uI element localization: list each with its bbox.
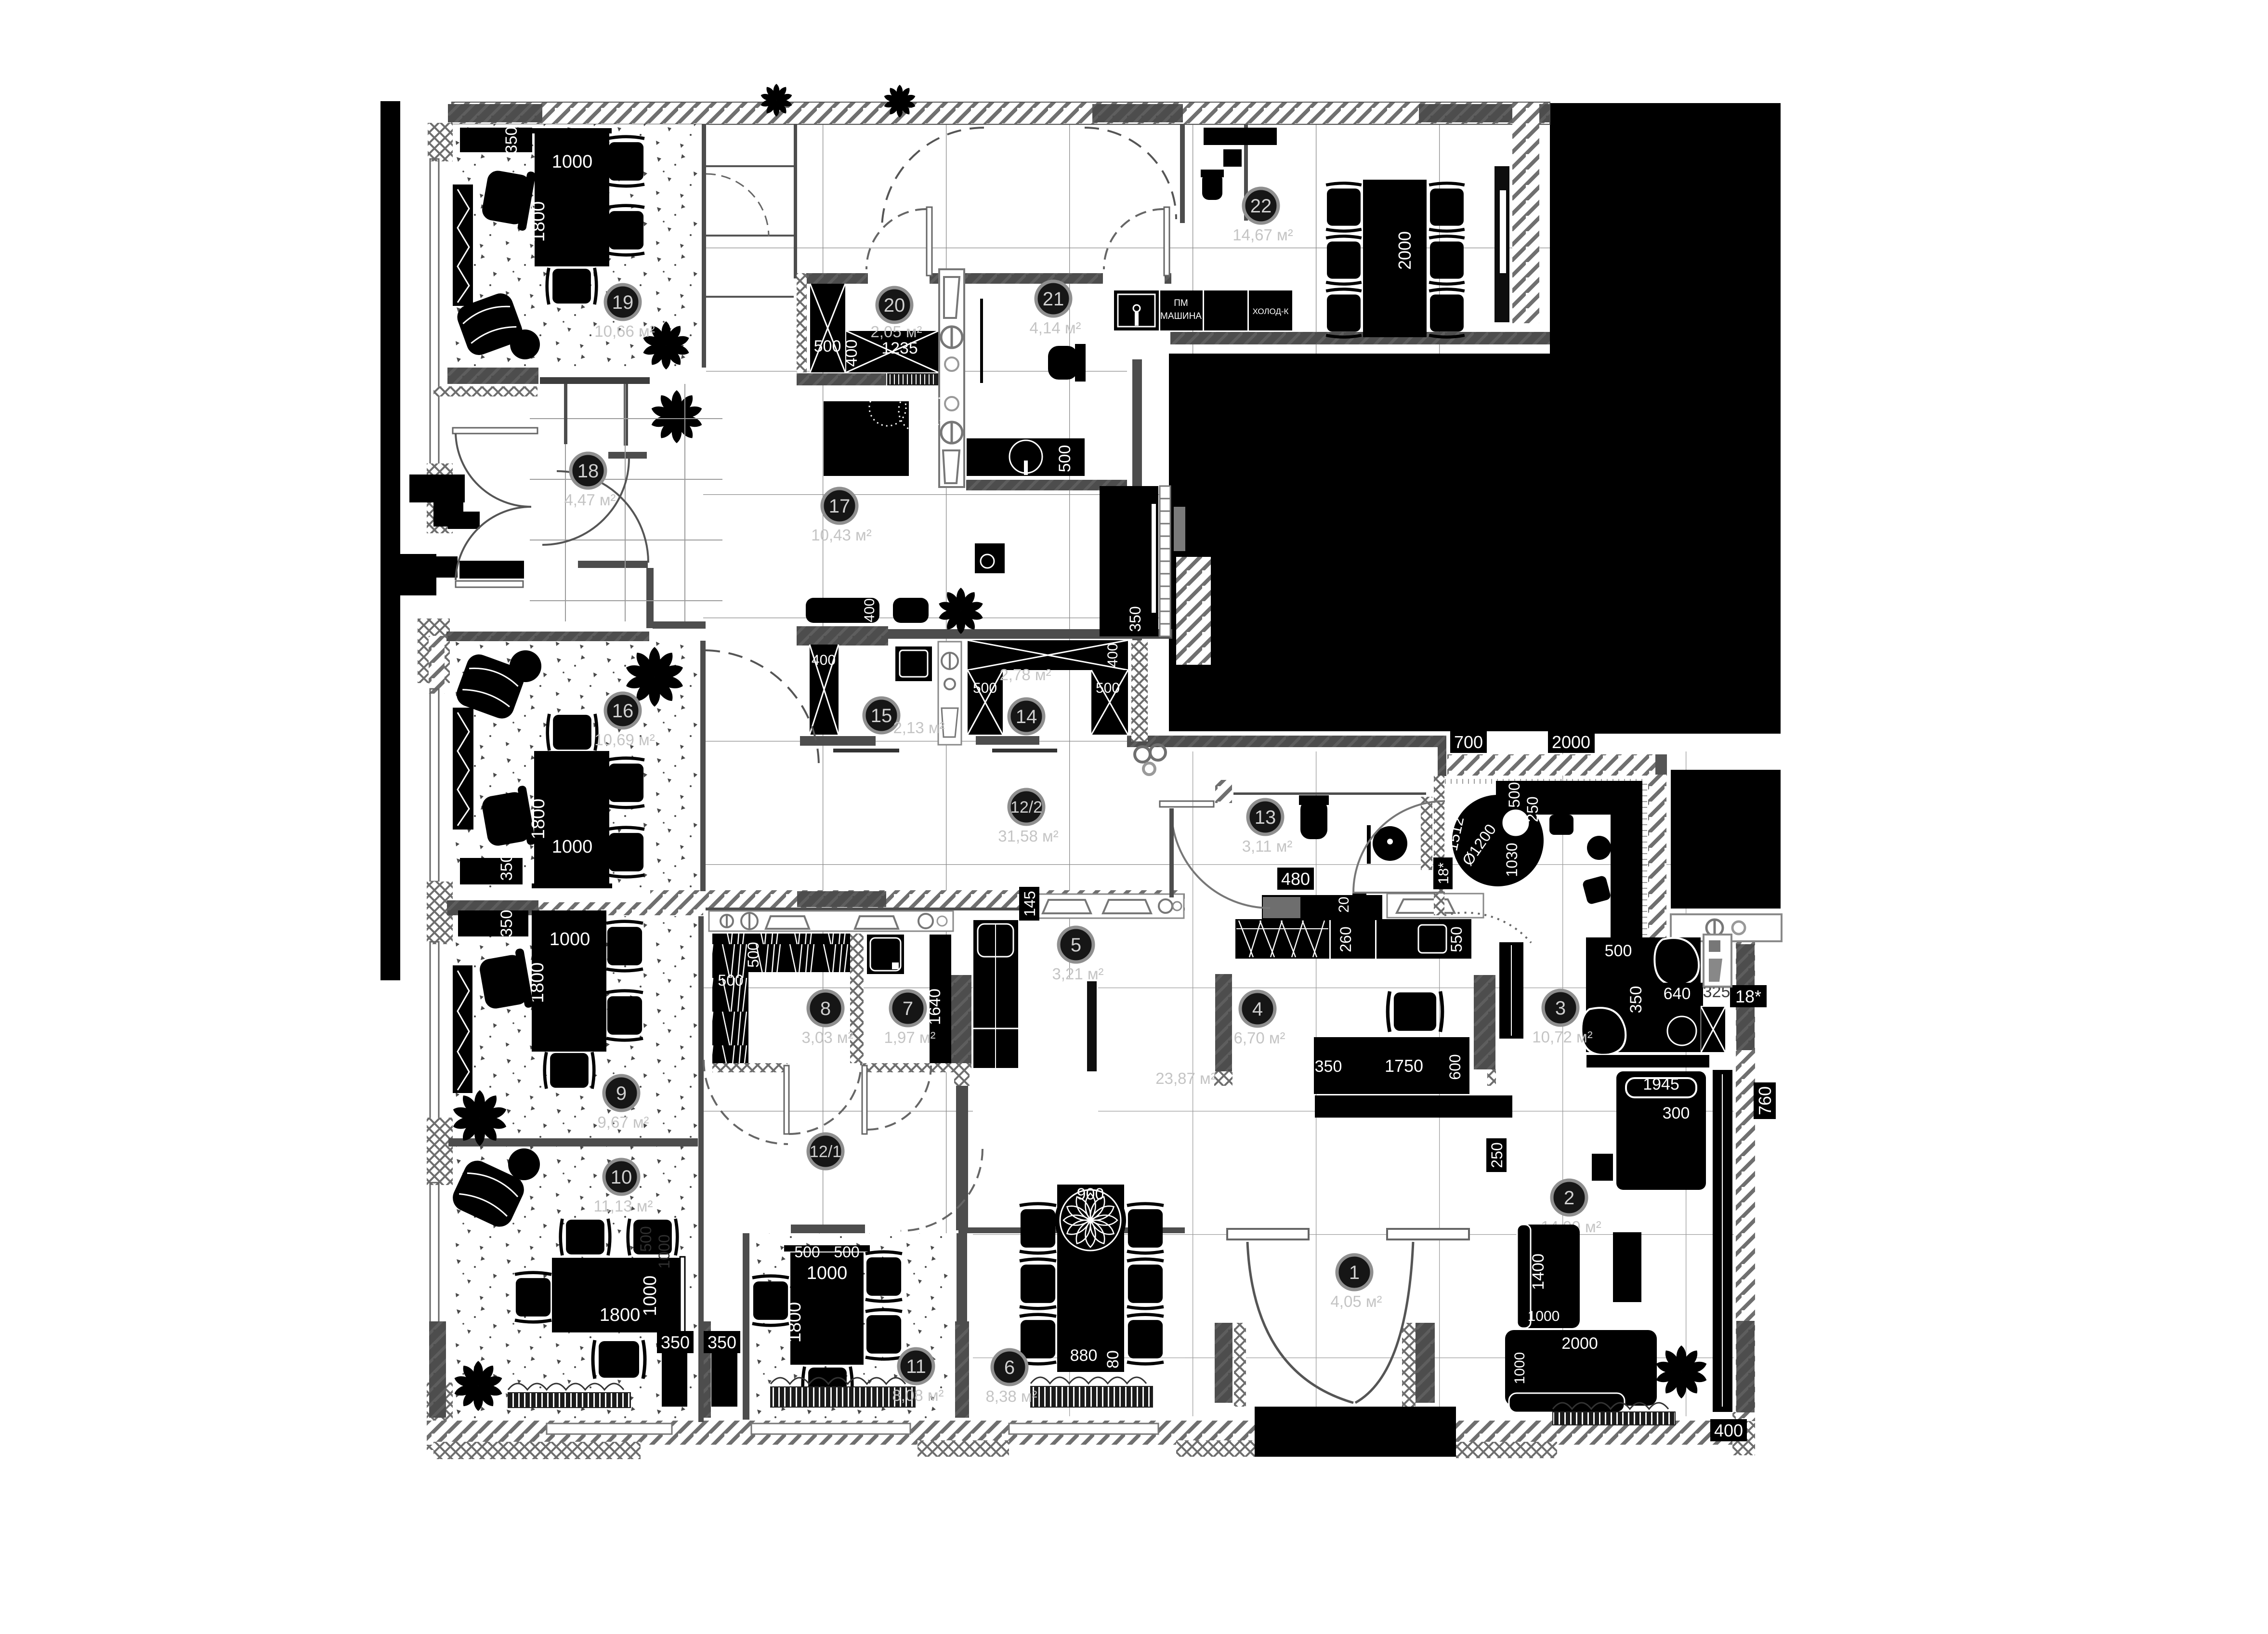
svg-text:2,78 м²: 2,78 м² [999,666,1051,684]
svg-text:500: 500 [834,1243,859,1261]
svg-text:20: 20 [884,295,905,316]
svg-text:18*: 18* [1735,987,1761,1006]
svg-text:350: 350 [1127,606,1144,632]
svg-text:ХОЛОД-К: ХОЛОД-К [1253,307,1289,316]
svg-text:350: 350 [502,127,521,154]
svg-text:17: 17 [829,496,851,517]
svg-text:12/2: 12/2 [1010,798,1042,817]
svg-text:80: 80 [1104,1350,1122,1369]
svg-text:250: 250 [1488,1142,1506,1168]
svg-text:1800: 1800 [528,799,549,840]
svg-text:10: 10 [611,1167,632,1188]
svg-text:18*: 18* [1436,862,1452,884]
svg-text:9: 9 [616,1083,627,1104]
svg-text:10,66 м²: 10,66 м² [594,322,655,340]
svg-text:2: 2 [1564,1187,1574,1209]
svg-text:145: 145 [1021,891,1038,916]
svg-text:400: 400 [1714,1421,1743,1440]
svg-text:1400: 1400 [1529,1253,1547,1290]
svg-text:1000: 1000 [550,929,590,949]
svg-text:400: 400 [862,598,878,622]
svg-text:11: 11 [906,1356,926,1377]
svg-text:3: 3 [1555,998,1566,1019]
svg-text:480: 480 [1281,869,1310,889]
svg-text:350: 350 [708,1332,736,1352]
svg-text:500: 500 [973,680,997,696]
svg-text:20: 20 [1336,896,1352,912]
svg-text:1000: 1000 [807,1263,848,1283]
svg-text:19: 19 [612,292,634,313]
svg-text:1000: 1000 [552,837,593,857]
svg-text:13: 13 [1255,807,1276,828]
svg-text:11,13 м²: 11,13 м² [594,1197,653,1215]
svg-text:1000: 1000 [655,1234,673,1268]
svg-text:10,72 м²: 10,72 м² [1532,1028,1592,1046]
svg-text:10,69 м²: 10,69 м² [594,731,655,749]
svg-text:500: 500 [718,972,743,989]
svg-text:1: 1 [1349,1262,1360,1283]
svg-text:ПМ: ПМ [1174,298,1188,308]
svg-text:6,70 м²: 6,70 м² [1233,1029,1285,1047]
svg-text:4,05 м²: 4,05 м² [1330,1292,1382,1310]
svg-text:500: 500 [1056,445,1074,473]
svg-text:2,13 м²: 2,13 м² [893,719,944,737]
svg-text:760: 760 [1755,1086,1775,1115]
svg-text:14,67 м²: 14,67 м² [1232,226,1293,244]
svg-text:1000: 1000 [1528,1308,1560,1324]
svg-text:500: 500 [745,942,762,967]
svg-text:600: 600 [1446,1054,1464,1080]
svg-text:2,05 м²: 2,05 м² [870,323,922,341]
svg-text:350: 350 [498,910,516,937]
svg-text:350: 350 [498,854,516,881]
svg-text:500: 500 [794,1243,820,1261]
svg-text:1000: 1000 [552,152,593,172]
svg-text:400: 400 [842,340,861,367]
svg-text:23,87 м²: 23,87 м² [1155,1069,1216,1087]
svg-text:4: 4 [1252,999,1263,1020]
svg-text:900: 900 [1077,1185,1104,1203]
svg-text:350: 350 [661,1332,690,1352]
svg-text:250: 250 [1524,796,1541,822]
svg-text:9,67 м²: 9,67 м² [597,1113,649,1131]
svg-text:1750: 1750 [1385,1056,1423,1076]
svg-text:МАШИНА: МАШИНА [1160,311,1202,321]
svg-text:31,58 м²: 31,58 м² [998,827,1058,845]
svg-text:500: 500 [814,337,841,356]
svg-text:2000: 2000 [1561,1334,1598,1353]
svg-text:500: 500 [1605,942,1632,960]
svg-text:500: 500 [1506,782,1523,807]
svg-text:22: 22 [1250,196,1272,217]
svg-text:14: 14 [1016,706,1037,727]
svg-text:1945: 1945 [1643,1075,1679,1094]
svg-text:3,11 м²: 3,11 м² [1242,837,1293,855]
svg-text:2000: 2000 [1395,231,1415,270]
svg-text:500: 500 [637,1226,655,1252]
svg-text:1800: 1800 [528,201,549,242]
svg-text:1235: 1235 [881,339,918,357]
svg-text:6: 6 [1004,1357,1015,1378]
svg-text:500: 500 [1096,680,1120,696]
svg-text:4,14 м²: 4,14 м² [1029,319,1081,337]
svg-text:8,08 м²: 8,08 м² [892,1386,944,1404]
svg-text:550: 550 [1448,926,1465,952]
svg-text:8,38 м²: 8,38 м² [985,1387,1037,1405]
svg-text:12/1: 12/1 [810,1143,841,1161]
svg-text:3,21 м²: 3,21 м² [1052,965,1103,983]
svg-text:2000: 2000 [1552,732,1590,752]
svg-text:21: 21 [1043,289,1064,310]
svg-text:4,47 м²: 4,47 м² [564,491,616,509]
svg-text:1000: 1000 [640,1276,660,1317]
svg-text:300: 300 [1663,1104,1690,1122]
svg-text:640: 640 [1664,985,1691,1003]
svg-text:260: 260 [1337,926,1354,952]
svg-text:16: 16 [612,700,634,722]
svg-text:1000: 1000 [1512,1352,1528,1384]
svg-text:10,43 м²: 10,43 м² [811,526,871,544]
svg-text:1,97 м²: 1,97 м² [884,1028,935,1046]
svg-text:15: 15 [871,705,892,726]
svg-text:8: 8 [820,998,831,1019]
svg-text:7: 7 [903,998,913,1019]
svg-text:1640: 1640 [926,988,944,1025]
svg-text:3,03 м²: 3,03 м² [801,1028,853,1046]
svg-text:350: 350 [1315,1057,1342,1076]
svg-text:350: 350 [1627,986,1645,1014]
svg-text:1800: 1800 [600,1305,641,1325]
svg-text:400: 400 [812,652,836,668]
svg-text:700: 700 [1454,732,1483,752]
svg-text:880: 880 [1070,1346,1098,1365]
svg-text:18: 18 [577,461,599,482]
svg-text:5: 5 [1071,935,1081,956]
svg-text:1030: 1030 [1503,843,1521,877]
svg-text:400: 400 [1105,643,1121,667]
